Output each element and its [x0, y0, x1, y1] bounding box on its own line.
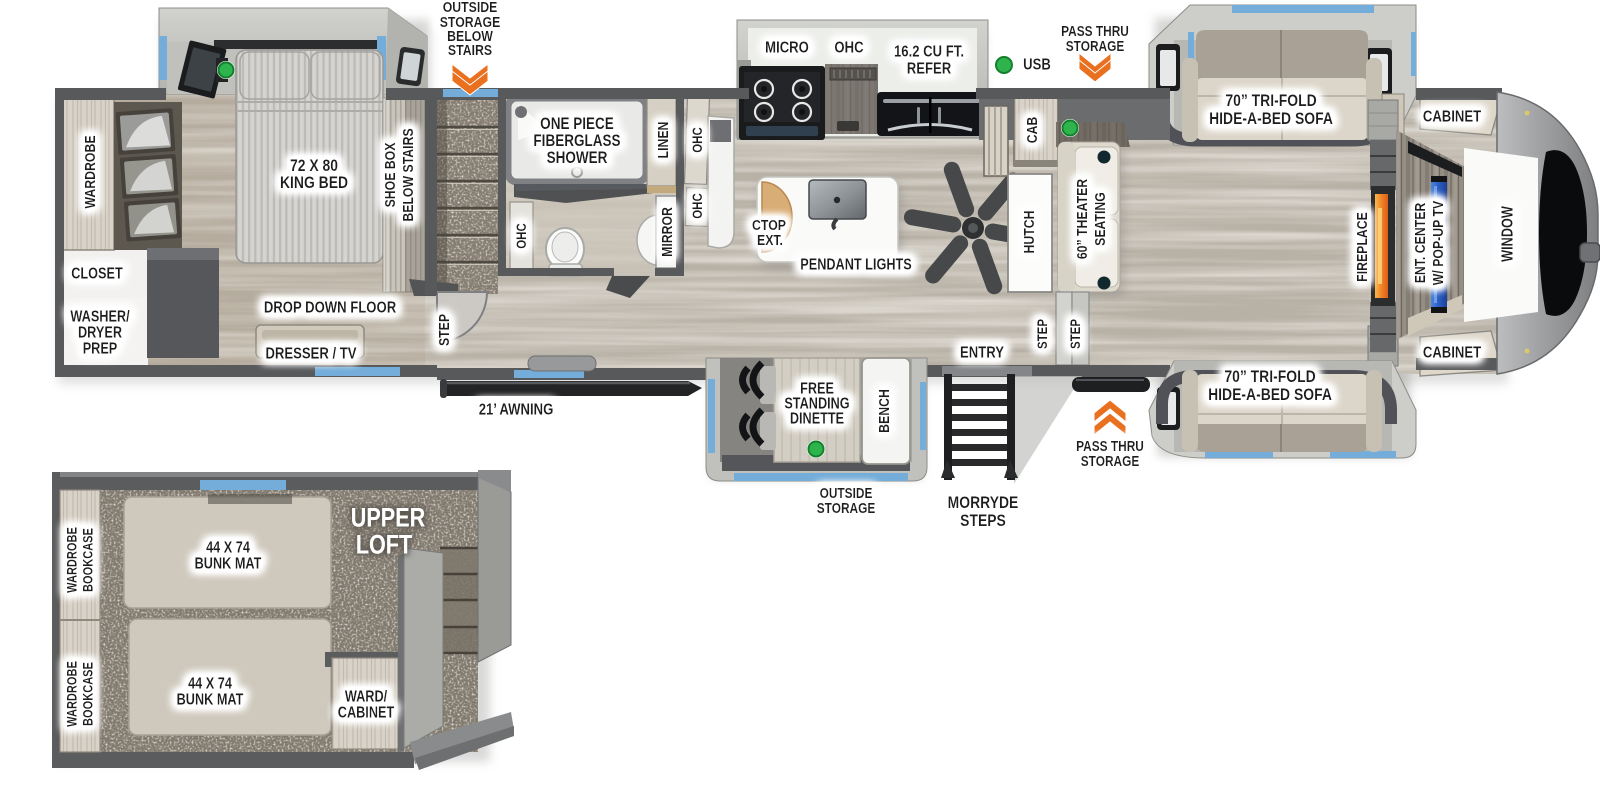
svg-text:HIDE-A-BED SOFA: HIDE-A-BED SOFA	[1208, 386, 1332, 405]
svg-text:SEATING: SEATING	[1092, 192, 1108, 246]
svg-text:MORRYDE: MORRYDE	[948, 494, 1019, 513]
svg-text:72 X 80: 72 X 80	[290, 157, 338, 176]
svg-text:HIDE-A-BED SOFA: HIDE-A-BED SOFA	[1209, 110, 1333, 129]
svg-text:HUTCH: HUTCH	[1021, 210, 1037, 253]
svg-text:CABINET: CABINET	[338, 704, 395, 721]
svg-text:WARDROBE: WARDROBE	[64, 661, 79, 727]
svg-text:MIRROR: MIRROR	[659, 207, 675, 257]
svg-text:STEPS: STEPS	[960, 512, 1006, 531]
svg-text:WINDOW: WINDOW	[1499, 206, 1516, 262]
svg-text:OHC: OHC	[834, 39, 864, 56]
svg-text:STEP: STEP	[436, 314, 452, 346]
svg-text:BELOW STAIRS: BELOW STAIRS	[400, 128, 416, 221]
svg-text:UPPER: UPPER	[351, 503, 426, 533]
svg-text:70” TRI-FOLD: 70” TRI-FOLD	[1224, 368, 1315, 387]
svg-text:BUNK MAT: BUNK MAT	[177, 691, 244, 708]
svg-text:DROP DOWN FLOOR: DROP DOWN FLOOR	[264, 299, 397, 316]
svg-text:BUNK MAT: BUNK MAT	[195, 555, 262, 572]
svg-text:WASHER/: WASHER/	[70, 308, 129, 325]
svg-text:CTOP: CTOP	[752, 217, 786, 233]
svg-text:PASS THRU: PASS THRU	[1076, 438, 1144, 454]
svg-text:OHC: OHC	[689, 193, 705, 219]
svg-text:44 X 74: 44 X 74	[188, 675, 232, 692]
svg-text:SHOE BOX: SHOE BOX	[382, 142, 398, 208]
svg-text:CABINET: CABINET	[1423, 344, 1481, 361]
svg-text:PENDANT LIGHTS: PENDANT LIGHTS	[800, 256, 911, 273]
svg-text:PASS THRU: PASS THRU	[1061, 23, 1129, 39]
svg-text:OHC: OHC	[513, 223, 529, 249]
svg-text:STAIRS: STAIRS	[448, 42, 492, 58]
svg-text:STORAGE: STORAGE	[1081, 453, 1140, 469]
svg-text:STEP: STEP	[1034, 319, 1050, 349]
svg-text:WARDROBE: WARDROBE	[82, 135, 98, 208]
svg-text:ENT. CENTER: ENT. CENTER	[1412, 203, 1428, 284]
svg-text:ONE PIECE: ONE PIECE	[540, 115, 614, 134]
svg-text:60” THEATER: 60” THEATER	[1074, 179, 1090, 259]
svg-text:BOOKCASE: BOOKCASE	[80, 662, 95, 726]
svg-text:21’ AWNING: 21’ AWNING	[479, 401, 554, 418]
svg-text:LOFT: LOFT	[356, 530, 412, 560]
svg-text:44 X 74: 44 X 74	[206, 539, 250, 556]
svg-text:OUTSIDE: OUTSIDE	[820, 485, 873, 501]
svg-text:CABINET: CABINET	[1423, 108, 1481, 125]
svg-text:BENCH: BENCH	[876, 389, 892, 433]
svg-text:OHC: OHC	[689, 127, 705, 153]
svg-text:USB: USB	[1023, 56, 1051, 73]
svg-text:STEP: STEP	[1067, 319, 1083, 349]
svg-text:ENTRY: ENTRY	[960, 344, 1004, 361]
svg-text:LINEN: LINEN	[655, 122, 671, 159]
svg-text:DINETTE: DINETTE	[790, 410, 844, 427]
svg-text:WARD/: WARD/	[345, 688, 387, 705]
svg-text:W/ POP-UP TV: W/ POP-UP TV	[1430, 200, 1446, 285]
svg-text:KING BED: KING BED	[280, 174, 348, 193]
svg-text:DRYER: DRYER	[78, 324, 122, 341]
svg-text:STORAGE: STORAGE	[817, 500, 876, 516]
svg-text:16.2 CU FT.: 16.2 CU FT.	[894, 43, 964, 60]
svg-text:BOOKCASE: BOOKCASE	[80, 528, 95, 592]
svg-text:70” TRI-FOLD: 70” TRI-FOLD	[1225, 92, 1316, 111]
svg-text:WARDROBE: WARDROBE	[64, 527, 79, 593]
svg-text:CAB: CAB	[1024, 117, 1040, 144]
svg-text:MICRO: MICRO	[765, 39, 809, 56]
svg-text:FIREPLACE: FIREPLACE	[1354, 212, 1370, 282]
svg-text:FIBERGLASS: FIBERGLASS	[533, 132, 620, 151]
svg-text:PREP: PREP	[83, 340, 118, 357]
svg-text:REFER: REFER	[907, 60, 952, 77]
svg-text:DRESSER / TV: DRESSER / TV	[265, 345, 356, 362]
svg-text:CLOSET: CLOSET	[71, 265, 123, 282]
svg-text:STORAGE: STORAGE	[1066, 38, 1125, 54]
svg-text:SHOWER: SHOWER	[547, 149, 608, 168]
svg-text:EXT.: EXT.	[757, 232, 783, 248]
